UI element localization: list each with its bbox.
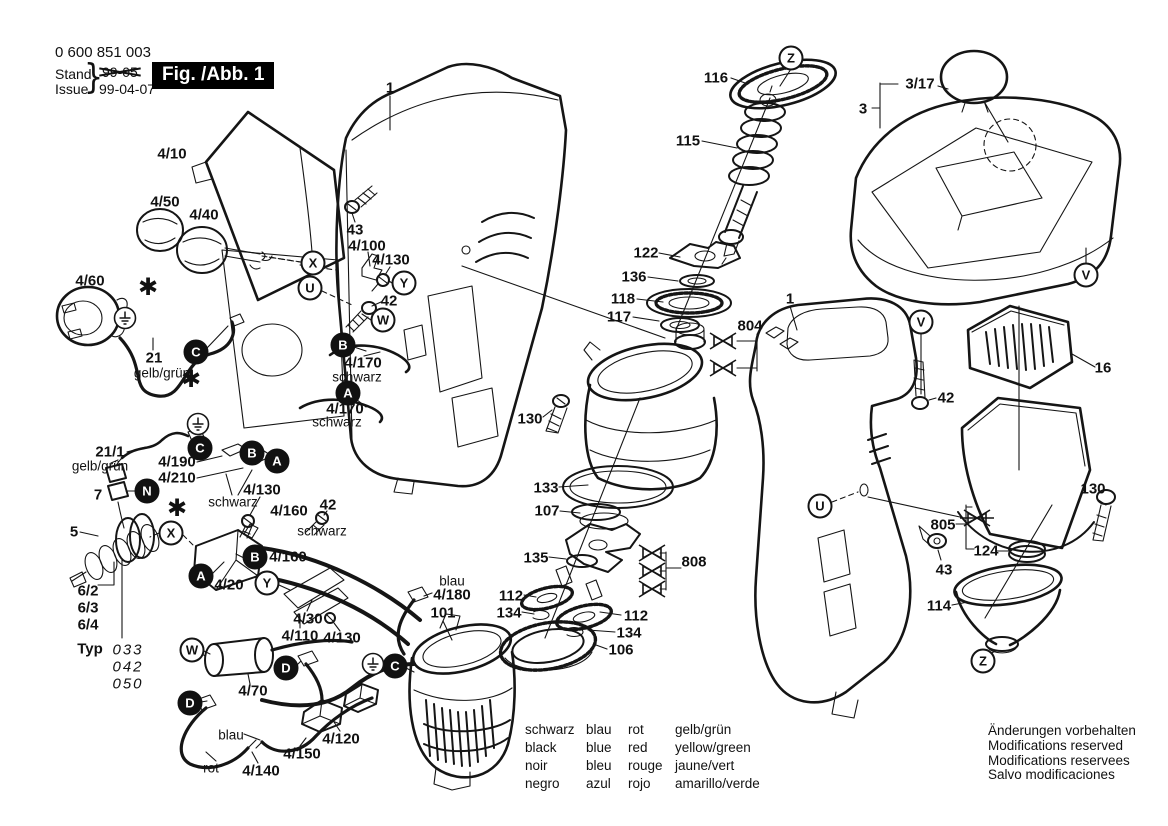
asterisk-icon: ✱ bbox=[138, 275, 158, 299]
part-callout-label: 4/130 bbox=[323, 630, 361, 647]
part-callout-label: 114 bbox=[927, 598, 951, 615]
part-callout-label: 4/130 bbox=[243, 482, 281, 499]
part-callout-label: gelb/grün bbox=[72, 459, 128, 474]
part-callout-label: 122 bbox=[633, 245, 658, 262]
part-callout-label: 804 bbox=[737, 318, 762, 335]
modifications-notice: Änderungen vorbehalten Modifications res… bbox=[988, 724, 1136, 783]
part-callout-label: 6/3 bbox=[78, 600, 99, 617]
letter-callout-a: A bbox=[265, 449, 290, 474]
part-callout-label: 4/140 bbox=[242, 763, 280, 780]
earth-ground-icon bbox=[361, 652, 385, 676]
earth-ground-icon bbox=[113, 306, 137, 330]
letter-callout-z: Z bbox=[971, 649, 996, 674]
part-callout-label: 808 bbox=[681, 554, 706, 571]
asterisk-icon: ✱ bbox=[167, 496, 187, 520]
parts-diagram-page: 0 600 851 003 Stand Issue } 99-05 99-04-… bbox=[0, 0, 1168, 826]
part-callout-label: 6/2 bbox=[78, 583, 99, 600]
part-callout-label: 43 bbox=[936, 562, 953, 579]
letter-callout-a: A bbox=[336, 381, 361, 406]
letter-callout-z: Z bbox=[779, 46, 804, 71]
legend-col-schwarz: schwarz black noir negro bbox=[525, 721, 586, 793]
letter-callout-w: W bbox=[180, 638, 205, 663]
part-callout-label: 124 bbox=[973, 543, 998, 560]
part-callout-label: 4/30 bbox=[293, 611, 322, 628]
part-callout-label: 3 bbox=[859, 101, 867, 118]
deleted-fastener-icon bbox=[959, 506, 995, 530]
part-callout-label: 42 bbox=[320, 497, 337, 514]
letter-callout-v: V bbox=[1074, 263, 1099, 288]
part-callout-label: 4/40 bbox=[189, 207, 218, 224]
part-callout-label: 1 bbox=[386, 80, 394, 97]
part-callout-label: 16 bbox=[1095, 360, 1112, 377]
deleted-fastener-icon bbox=[634, 577, 670, 601]
part-callout-label: 6/4 bbox=[78, 617, 99, 634]
letter-callout-x: X bbox=[301, 251, 326, 276]
part-callout-label: 4/70 bbox=[238, 683, 267, 700]
part-callout-label: 033 bbox=[112, 642, 143, 659]
part-housing-right bbox=[750, 298, 960, 718]
part-callout-label: 4/20 bbox=[214, 577, 243, 594]
part-callout-label: 4/210 bbox=[158, 470, 196, 487]
letter-callout-b: B bbox=[331, 333, 356, 358]
part-callout-label: 115 bbox=[676, 133, 700, 150]
part-callout-label: 4/10 bbox=[157, 146, 186, 163]
part-callout-label: 4/130 bbox=[372, 252, 410, 269]
part-callout-label: 4/120 bbox=[322, 731, 360, 748]
part-callout-label: 134 bbox=[496, 605, 521, 622]
letter-callout-u: U bbox=[808, 494, 833, 519]
part-callout-label: 4/150 bbox=[283, 746, 321, 763]
letter-callout-v: V bbox=[909, 310, 934, 335]
part-callout-label: 101 bbox=[430, 605, 455, 622]
part-motor bbox=[408, 614, 516, 790]
letter-callout-a: A bbox=[189, 564, 214, 589]
letter-callout-b: B bbox=[243, 545, 268, 570]
part-callout-label: 116 bbox=[704, 70, 728, 87]
exploded-drawing bbox=[0, 0, 1168, 826]
part-callout-label: schwarz bbox=[297, 524, 347, 539]
part-callout-label: 4/160 bbox=[269, 549, 307, 566]
part-callout-label: Typ bbox=[77, 641, 103, 658]
part-804-bracket bbox=[737, 306, 798, 371]
part-callout-label: rot bbox=[203, 761, 219, 776]
part-callout-label: 050 bbox=[112, 676, 143, 693]
deleted-fastener-icon bbox=[705, 356, 741, 380]
part-callout-label: 130 bbox=[517, 411, 542, 428]
part-callout-label: 4/60 bbox=[75, 273, 104, 290]
letter-callout-x: X bbox=[159, 521, 184, 546]
part-callout-label: 4/180 bbox=[433, 587, 471, 604]
letter-callout-y: Y bbox=[255, 571, 280, 596]
letter-callout-y: Y bbox=[392, 271, 417, 296]
letter-callout-c: C bbox=[383, 654, 408, 679]
part-callout-label: 7 bbox=[94, 487, 102, 504]
part-callout-label: 112 bbox=[624, 608, 648, 625]
part-callout-label: 4/50 bbox=[150, 194, 179, 211]
color-legend: schwarz black noir negro blau blue bleu … bbox=[525, 721, 760, 793]
part-callout-label: 042 bbox=[112, 659, 143, 676]
letter-callout-n: N bbox=[135, 479, 160, 504]
part-callout-label: 4/160 bbox=[270, 503, 308, 520]
letter-callout-b: B bbox=[240, 441, 265, 466]
part-callout-label: blau bbox=[218, 728, 244, 743]
part-callout-label: 42 bbox=[938, 390, 955, 407]
part-callout-label: 43 bbox=[347, 222, 364, 239]
part-callout-label: 136 bbox=[621, 269, 646, 286]
part-callout-label: 4/110 bbox=[282, 628, 319, 645]
legend-col-rot: rot red rouge rojo bbox=[628, 721, 675, 793]
part-callout-label: 112 bbox=[499, 588, 523, 605]
part-callout-label: 1 bbox=[786, 291, 794, 308]
part-callout-label: 805 bbox=[930, 517, 955, 534]
part-drum-housing bbox=[543, 323, 717, 489]
part-callout-label: 21 bbox=[146, 350, 163, 367]
part-callout-label: 5 bbox=[70, 524, 78, 541]
part-spindle-column bbox=[633, 51, 840, 332]
figure-label: Fig. /Abb. 1 bbox=[152, 62, 274, 89]
part-callout-label: 135 bbox=[523, 550, 548, 567]
part-callout-label: 118 bbox=[611, 291, 635, 308]
part-callout-label: 133 bbox=[533, 480, 558, 497]
deleted-fastener-icon bbox=[705, 329, 741, 353]
part-callout-label: 134 bbox=[616, 625, 641, 642]
part-callout-label: 3/17 bbox=[905, 76, 934, 93]
part-callout-label: 117 bbox=[607, 309, 631, 326]
part-callout-label: 130 bbox=[1080, 481, 1105, 498]
legend-col-gelbgruen: gelb/grün yellow/green jaune/vert amaril… bbox=[675, 721, 760, 793]
part-callout-label: 107 bbox=[534, 503, 559, 520]
part-callout-label: schwarz bbox=[312, 415, 362, 430]
letter-callout-c: C bbox=[184, 340, 209, 365]
letter-callout-d: D bbox=[178, 691, 203, 716]
issue-date: 99-04-07 bbox=[99, 81, 155, 97]
part-callout-label: 106 bbox=[608, 642, 633, 659]
legend-col-blau: blau blue bleu azul bbox=[586, 721, 628, 793]
letter-callout-d: D bbox=[274, 656, 299, 681]
superseded-date: 99-05 bbox=[102, 64, 138, 80]
letter-callout-u: U bbox=[298, 276, 323, 301]
earth-ground-icon bbox=[186, 412, 210, 436]
letter-callout-w: W bbox=[371, 308, 396, 333]
asterisk-icon: ✱ bbox=[181, 367, 201, 391]
letter-callout-c: C bbox=[188, 436, 213, 461]
